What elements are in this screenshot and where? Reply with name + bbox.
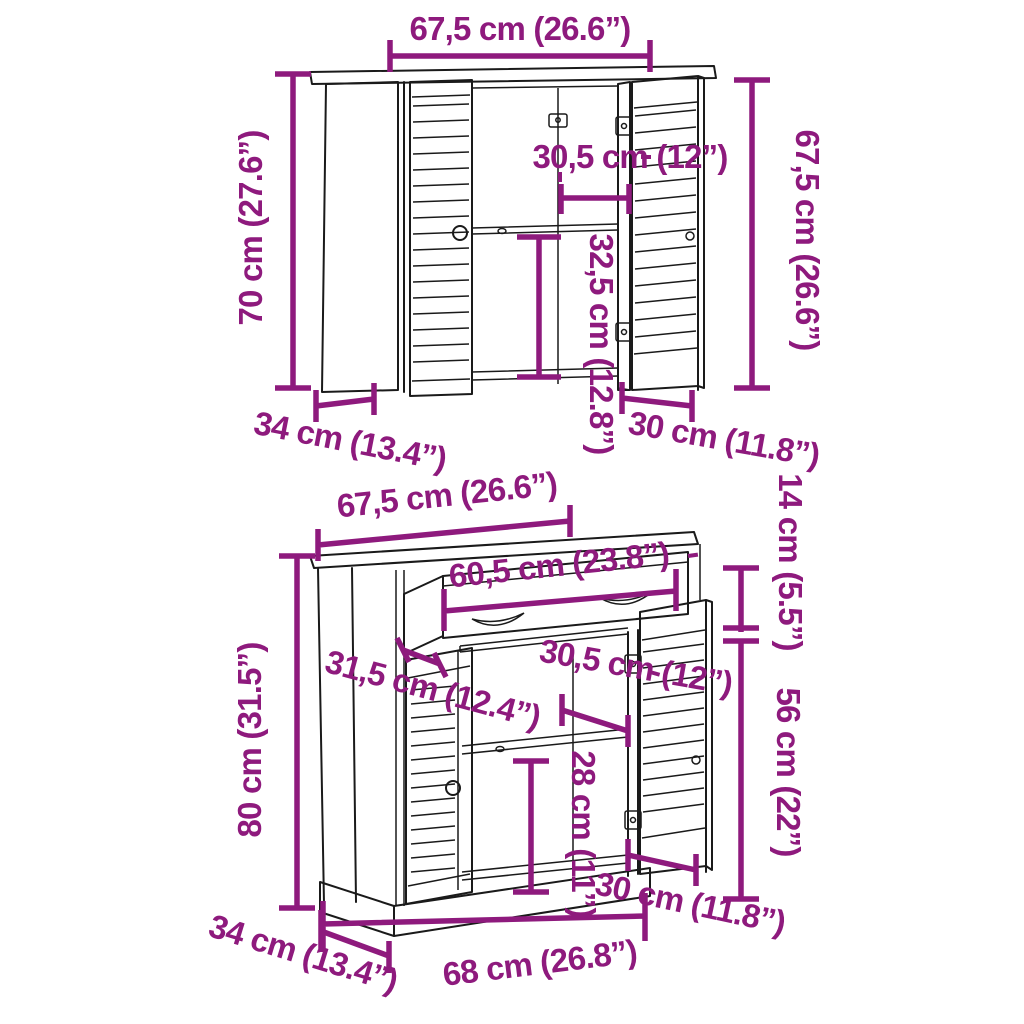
- sideboard-interior: [462, 648, 628, 880]
- sideboard-right-door-open: [640, 600, 712, 874]
- wall-cabinet-right-door-open: [632, 76, 704, 390]
- dim-side-top-width-label: 67,5 cm (26.6”): [335, 465, 559, 525]
- dim-side-drawer-height-line: [723, 568, 759, 641]
- door-knob: [686, 232, 694, 240]
- shelf: [462, 729, 628, 754]
- dim-side-total-height-line: [279, 556, 315, 908]
- dim-wall-right-height-label: 67,5 cm (26.6”): [789, 130, 826, 351]
- diagram-canvas: 67,5 cm (26.6”) 70 cm (27.6”) 30,5 cm (1…: [0, 0, 1024, 1024]
- louver-slats: [413, 104, 469, 362]
- dim-side-door-section-height-label: 56 cm (22”): [770, 687, 807, 856]
- wall-cabinet-drawing: [310, 66, 716, 396]
- dim-side-total-height-label: 80 cm (31.5”): [231, 642, 268, 837]
- dim-side-drawer-height-label: 14 cm (5.5”): [772, 473, 809, 651]
- dim-wall-compartment-width-label: 30,5 cm (12”): [532, 138, 727, 175]
- dim-side-compartment-width-line: [562, 694, 628, 747]
- dim-side-bottom-width-label: 68 cm (26.8”): [441, 932, 639, 992]
- shelf: [472, 224, 618, 234]
- louver-slats: [411, 686, 455, 872]
- dim-wall-depth-label: 34 cm (13.4”): [251, 404, 450, 478]
- shelf-peg: [498, 229, 506, 234]
- dim-side-drawer-width-label: 60,5 cm (23.8”): [447, 535, 671, 595]
- dim-side-door-width-label: 30 cm (11.8”): [592, 865, 789, 941]
- shelf-peg: [496, 747, 504, 752]
- wall-cabinet-left-door: [410, 80, 472, 396]
- dim-wall-door-width-label: 30 cm (11.8”): [626, 404, 823, 474]
- sideboard-dimensions: 67,5 cm (26.6”) 60,5 cm (23.8”) 14 cm (5…: [205, 465, 809, 1000]
- sideboard-side-panel: [318, 568, 356, 904]
- drawer-handle: [472, 613, 524, 625]
- dim-wall-top-width-label: 67,5 cm (26.6”): [410, 10, 631, 47]
- dim-wall-compartment-height-label: 32,5 cm (12.8”): [583, 234, 620, 455]
- dim-wall-left-height-label: 70 cm (27.6”): [232, 130, 269, 325]
- dimension-diagram: 67,5 cm (26.6”) 70 cm (27.6”) 30,5 cm (1…: [0, 0, 1024, 1024]
- dim-wall-compartment-height-line: [517, 237, 561, 377]
- dim-wall-left-height-line: [275, 74, 311, 388]
- dim-wall-right-height-line: [734, 80, 770, 388]
- wall-cabinet-top-board: [310, 66, 716, 84]
- wall-cabinet-side-panel: [322, 82, 398, 392]
